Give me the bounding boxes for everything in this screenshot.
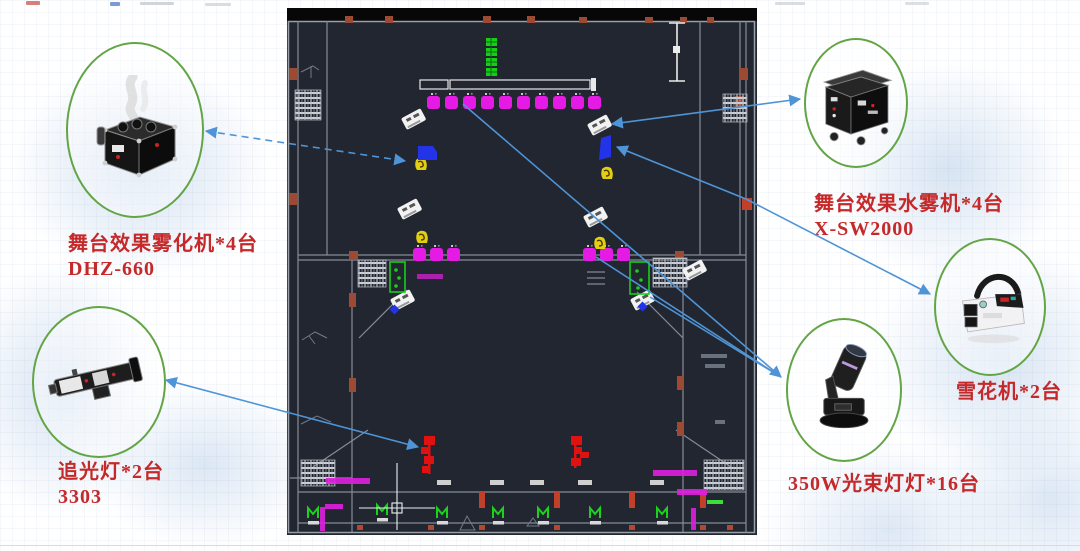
follow-spot-label-line1: 追光灯*2台	[58, 460, 164, 485]
bottom-divider-line	[0, 545, 1080, 546]
snow-machine-label: 雪花机*2台	[956, 380, 1062, 405]
beam-light-photo	[798, 338, 890, 442]
top-strip-gray-mark	[775, 2, 805, 5]
beam-light-label: 350W光束灯灯*16台	[788, 472, 980, 497]
water-mist-label: 舞台效果水雾机*4台 X-SW2000	[814, 192, 1004, 242]
green-annotation-mark	[707, 500, 723, 504]
water-mist-label-line2: X-SW2000	[814, 217, 1004, 242]
snow-machine-photo	[947, 259, 1033, 355]
top-edge-strip	[0, 0, 1080, 8]
follow-spot-label: 追光灯*2台 3303	[58, 460, 164, 510]
stage-floor-plan	[287, 8, 757, 537]
fog-machine-photo	[85, 75, 185, 185]
callout-snow-machine	[934, 238, 1046, 376]
fog-machine-label: 舞台效果雾化机*4台 DHZ-660	[68, 232, 258, 282]
water-mist-label-line1: 舞台效果水雾机*4台	[814, 192, 1004, 217]
water-mist-machine-photo	[814, 56, 898, 150]
fog-machine-label-line1: 舞台效果雾化机*4台	[68, 232, 258, 257]
snow-machine-label-line1: 雪花机*2台	[956, 380, 1062, 405]
top-strip-red-mark	[26, 1, 40, 5]
callout-water-mist-machine	[804, 38, 908, 168]
top-strip-gray-mark	[205, 3, 231, 6]
top-strip-blue-mark	[110, 2, 120, 6]
top-strip-gray-mark	[905, 2, 929, 5]
fog-machine-label-line2: DHZ-660	[68, 257, 258, 282]
callout-beam-light	[786, 318, 902, 462]
callout-follow-spot	[32, 306, 166, 458]
top-strip-gray-mark	[140, 2, 174, 5]
follow-spot-photo	[47, 330, 151, 434]
beam-light-label-line1: 350W光束灯灯*16台	[788, 472, 980, 497]
follow-spot-label-line2: 3303	[58, 485, 164, 510]
callout-fog-machine	[66, 42, 204, 218]
